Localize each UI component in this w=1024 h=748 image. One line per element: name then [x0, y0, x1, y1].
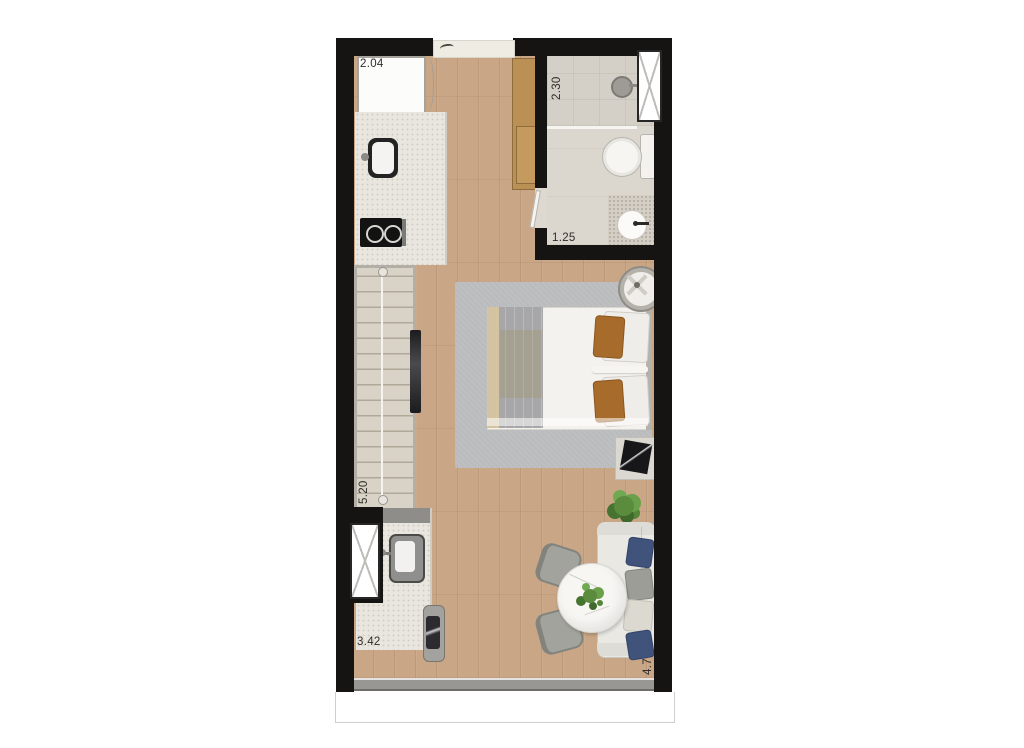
tv-panel	[410, 330, 421, 413]
throw-pillow-brown	[593, 315, 626, 359]
sofa-pillow-navy	[625, 536, 655, 568]
dim-wardrobe-wall: 5.20	[358, 480, 370, 504]
window-laundry	[350, 523, 380, 599]
kitchen-faucet-icon	[361, 153, 369, 161]
dim-bathroom: 1.25	[552, 232, 576, 244]
washing-machine-door	[426, 616, 440, 649]
dim-living-wall: 4.7	[642, 658, 654, 675]
wardrobe-knob	[378, 495, 388, 505]
window-band	[352, 678, 654, 691]
shower-head-icon	[611, 76, 633, 98]
dim-kitchen: 2.04	[360, 58, 384, 70]
bed-foot-fold	[487, 418, 648, 426]
wardrobe-knob	[378, 267, 388, 277]
bathroom-faucet-icon	[637, 222, 649, 225]
balcony-outline	[335, 692, 675, 723]
wardrobe-rod	[381, 269, 383, 501]
wall-bathroom-left-upper	[535, 55, 547, 188]
wall-bathroom-bottom	[535, 245, 672, 260]
laundry-counter-edge	[382, 508, 430, 523]
sofa-blanket	[623, 599, 655, 633]
plant	[614, 496, 634, 516]
fan-center	[634, 282, 640, 288]
sofa-pillow-gray	[624, 567, 655, 601]
cooktop-burner	[366, 225, 384, 243]
dim-shower: 2.30	[551, 76, 563, 100]
sofa-arm	[597, 522, 654, 535]
bathroom-sink	[617, 210, 647, 240]
dim-laundry: 3.42	[357, 636, 381, 648]
nightstand-object	[620, 440, 653, 474]
throw-pillow-brown	[593, 379, 626, 423]
toilet-bowl	[602, 137, 642, 177]
shower-partition	[547, 126, 637, 129]
floor-plan: 2.04 2.30 1.25 5.20 3.42 4.7	[336, 38, 672, 692]
bed-throw	[500, 330, 542, 398]
wall-right	[654, 38, 672, 692]
oven-handle	[402, 219, 406, 246]
window-bathroom	[637, 50, 662, 122]
bathroom-faucet-dot	[633, 221, 638, 226]
laundry-sink-basin	[395, 541, 415, 572]
table-plant	[583, 589, 597, 603]
bed-center-runner	[592, 366, 648, 373]
cooktop-burner	[384, 225, 402, 243]
wardrobe	[354, 265, 416, 511]
kitchen-sink-basin	[372, 142, 394, 174]
refrigerator-door-arc	[424, 58, 434, 110]
bed-blanket-beige	[487, 307, 499, 428]
sofa-pillow-navy	[625, 629, 655, 661]
